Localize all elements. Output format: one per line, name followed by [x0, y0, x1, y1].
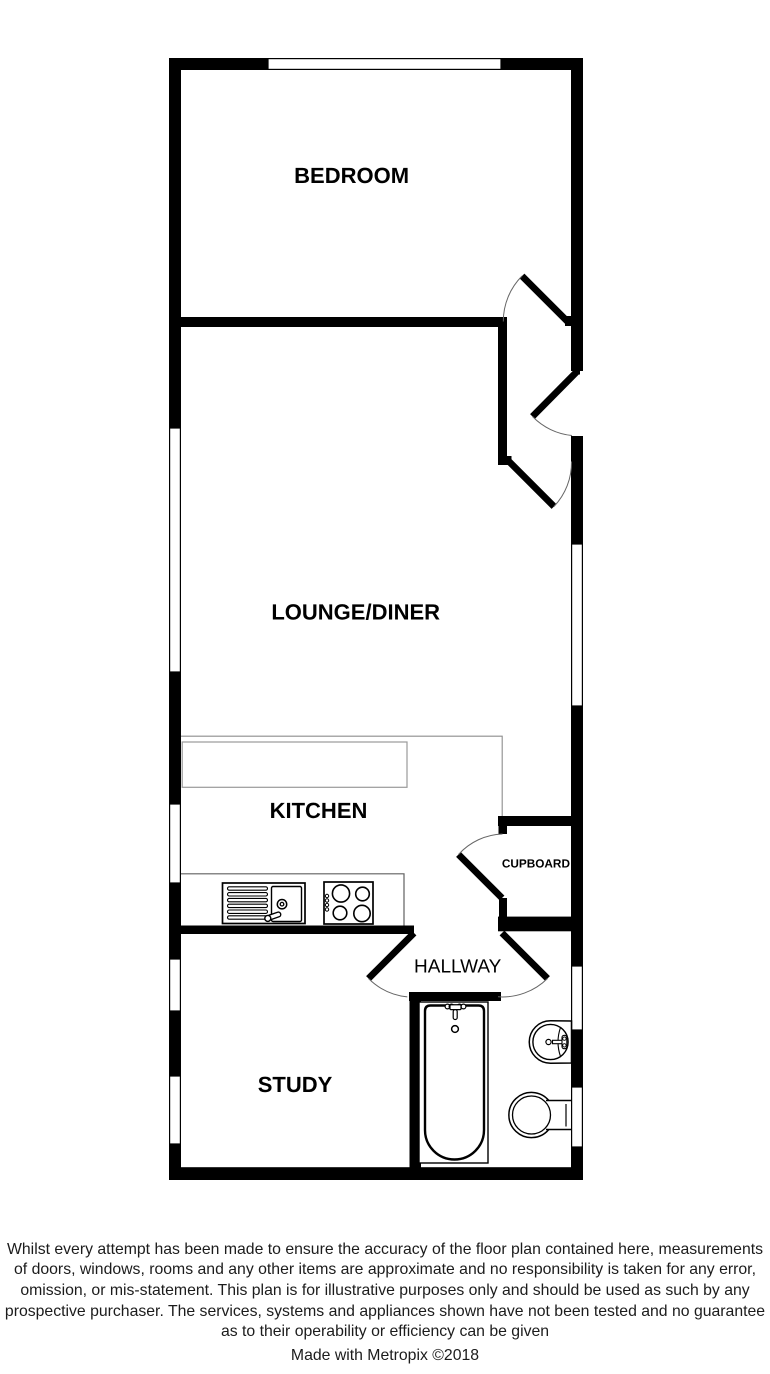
svg-text:HALLWAY: HALLWAY [414, 956, 502, 977]
svg-text:CUPBOARD: CUPBOARD [502, 857, 571, 871]
svg-text:STUDY: STUDY [258, 1072, 333, 1097]
svg-text:LOUNGE/DINER: LOUNGE/DINER [271, 600, 440, 625]
svg-text:BEDROOM: BEDROOM [294, 163, 409, 188]
svg-text:KITCHEN: KITCHEN [270, 798, 368, 823]
